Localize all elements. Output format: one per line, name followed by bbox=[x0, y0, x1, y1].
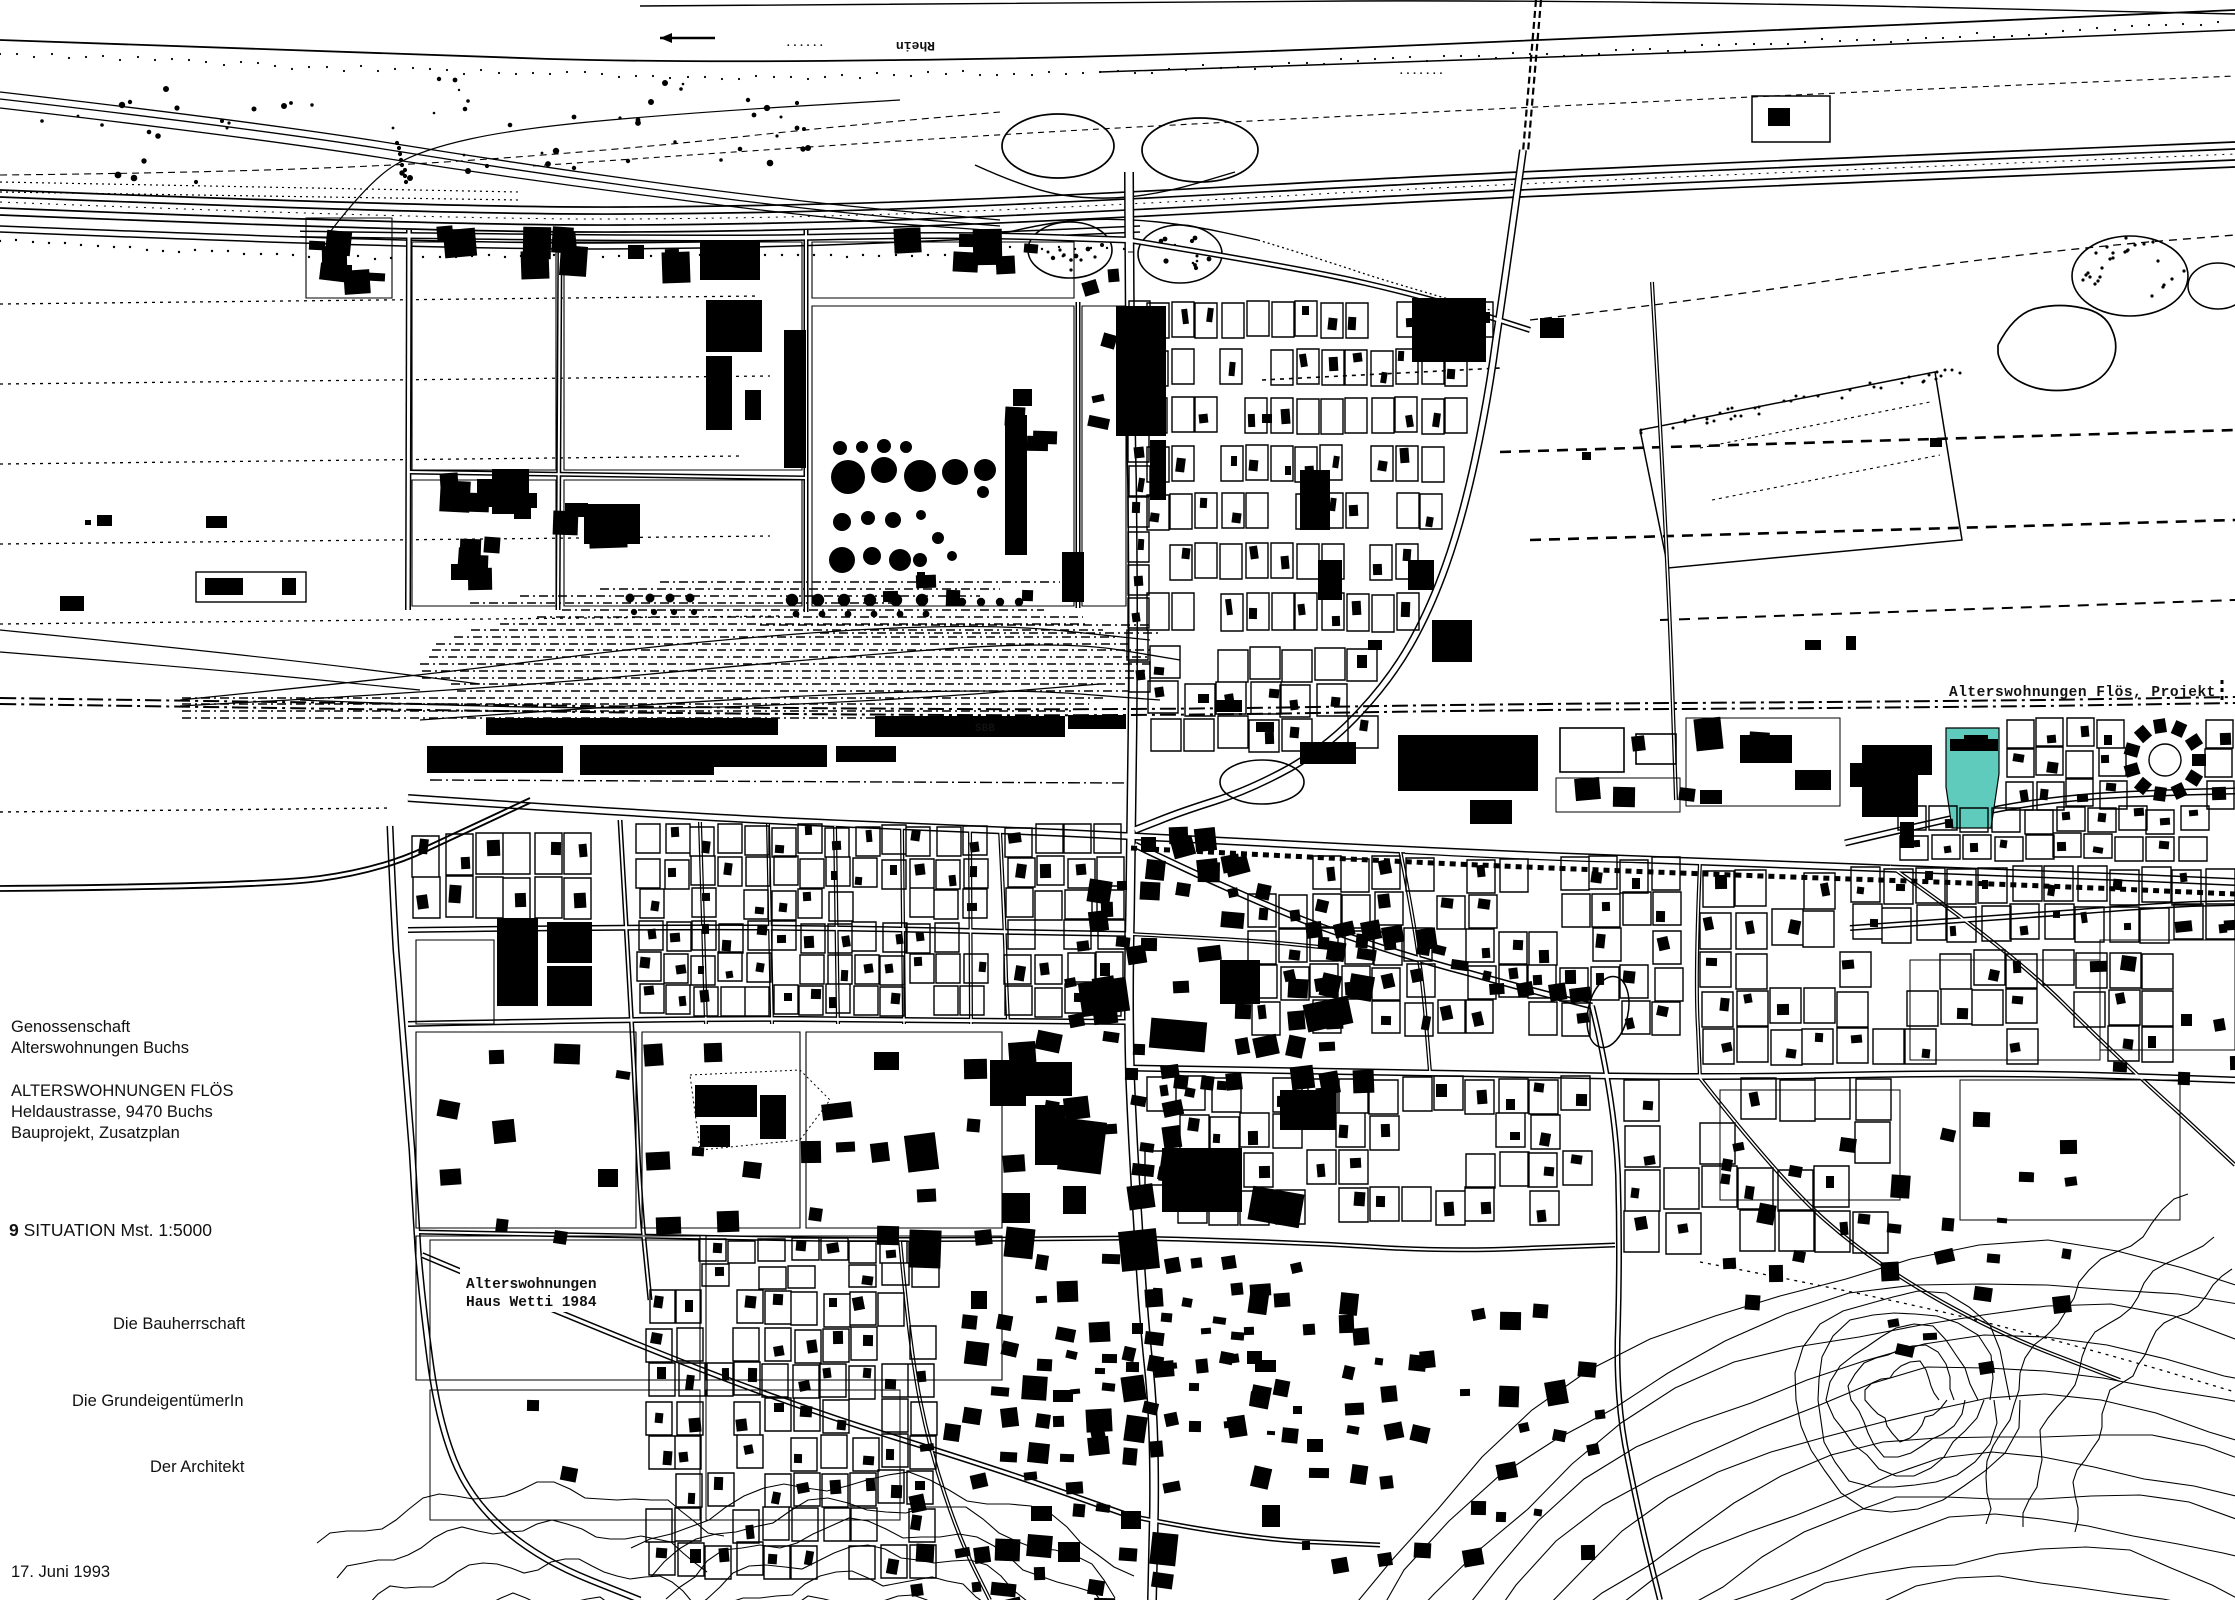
svg-text:Bauprojekt, Zusatzplan: Bauprojekt, Zusatzplan bbox=[11, 1124, 180, 1142]
svg-text:......: ...... bbox=[785, 38, 825, 50]
svg-text:Genossenschaft: Genossenschaft bbox=[11, 1018, 131, 1036]
svg-text:Die Bauherrschaft: Die Bauherrschaft bbox=[113, 1315, 245, 1333]
svg-text:Alterswohnungen Flös, Projekt: Alterswohnungen Flös, Projekt bbox=[1949, 685, 2216, 701]
svg-text:Haus Wetti 1984: Haus Wetti 1984 bbox=[466, 1295, 597, 1311]
svg-text:Rhein: Rhein bbox=[896, 38, 935, 53]
svg-text:ALTERSWOHNUNGEN FLÖS: ALTERSWOHNUNGEN FLÖS bbox=[11, 1082, 233, 1100]
svg-text:Heldaustrasse, 9470 Buchs: Heldaustrasse, 9470 Buchs bbox=[11, 1103, 213, 1121]
svg-text:.......: ....... bbox=[1398, 66, 1444, 78]
svg-text:9 SITUATION Mst. 1:5000: 9 SITUATION Mst. 1:5000 bbox=[9, 1220, 212, 1240]
svg-text:SBB: SBB bbox=[975, 723, 995, 735]
svg-text:17. Juni 1993: 17. Juni 1993 bbox=[11, 1563, 110, 1581]
svg-text:Die GrundeigentümerIn: Die GrundeigentümerIn bbox=[72, 1392, 244, 1410]
svg-text:Alterswohnungen: Alterswohnungen bbox=[466, 1277, 597, 1293]
svg-text:Alterswohnungen Buchs: Alterswohnungen Buchs bbox=[11, 1039, 189, 1057]
svg-text:Der Architekt: Der Architekt bbox=[150, 1458, 245, 1476]
